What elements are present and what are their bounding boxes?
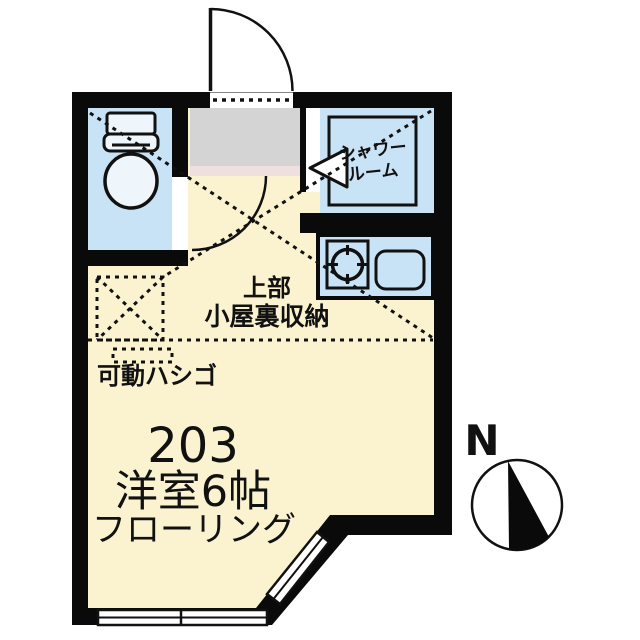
toilet-fixture xyxy=(104,113,158,208)
kitchen-sink xyxy=(376,251,424,289)
toilet-bowl xyxy=(105,154,157,208)
flooring-label: フローリング xyxy=(92,510,296,550)
entrance-floor xyxy=(190,108,300,166)
ladder-label: 可動ハシゴ xyxy=(97,362,217,390)
toilet-tank xyxy=(107,113,155,134)
entrance-step xyxy=(190,166,300,176)
toilet-bottom-wall xyxy=(88,250,188,266)
floor-plan-page: シャワー ルーム 上部 小屋裏収納 可動ハシゴ 203 洋室6帖 フローリング … xyxy=(0,0,640,640)
entrance-shower-wall xyxy=(300,108,306,192)
unit-number-label: 203 xyxy=(147,418,239,474)
shower-entry-strip xyxy=(306,108,320,192)
loft-label-line2: 小屋裏収納 xyxy=(204,302,329,331)
floor-plan-canvas: シャワー ルーム 上部 小屋裏収納 可動ハシゴ 203 洋室6帖 フローリング … xyxy=(0,0,640,640)
north-label: N xyxy=(464,416,499,465)
toilet-door-opening xyxy=(172,177,188,250)
shower-kitchen-wall xyxy=(300,213,434,233)
loft-label-line1: 上部 xyxy=(243,274,291,302)
toilet-lid xyxy=(104,134,158,151)
